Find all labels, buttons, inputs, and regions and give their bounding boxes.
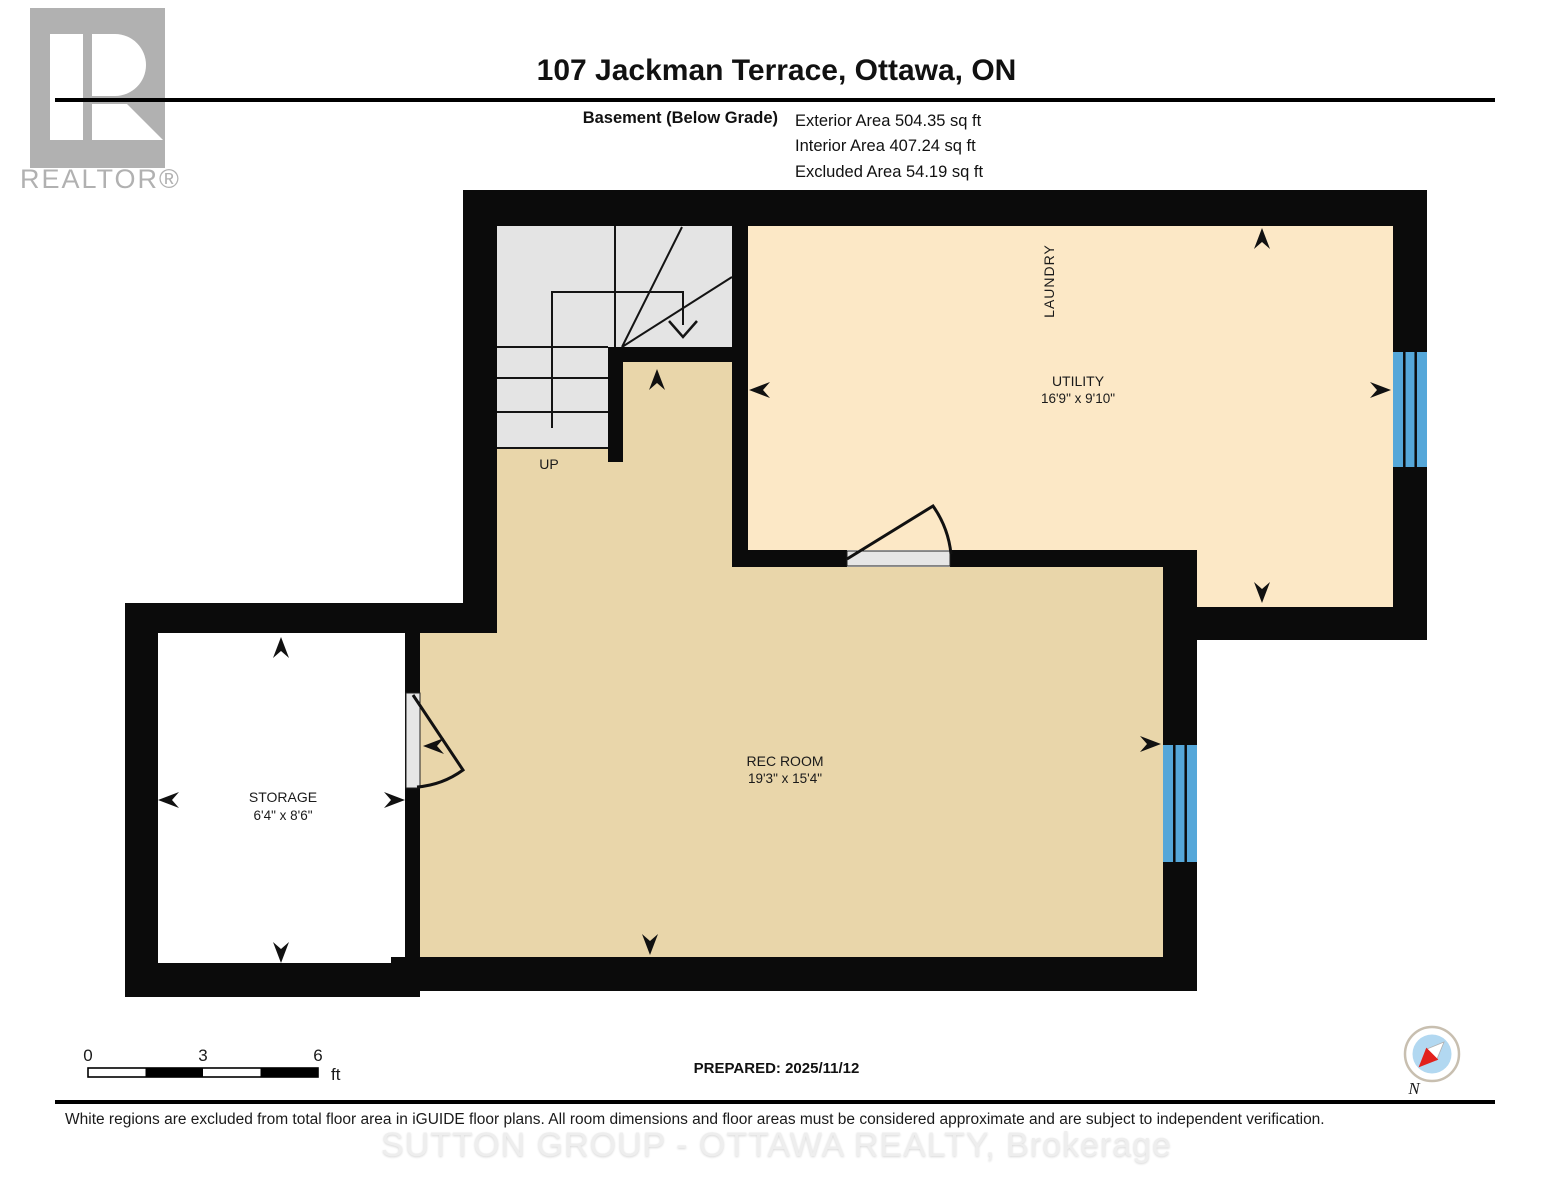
- window-utility: [1393, 352, 1427, 467]
- wall-top: [463, 190, 1427, 226]
- laundry-label: LAUNDRY: [1041, 244, 1057, 318]
- window-rec: [1163, 745, 1197, 862]
- wall-stair-utility: [732, 226, 748, 567]
- floor-plan-drawing: LAUNDRY UTILITY 16'9" x 9'10" REC ROOM 1…: [0, 0, 1553, 1200]
- wall-utility-bottom-right: [950, 550, 1163, 567]
- wall-stair-stub: [608, 362, 623, 462]
- floor-plan-page: REALTOR® 107 Jackman Terrace, Ottawa, ON…: [0, 0, 1553, 1200]
- rec-room-dims: 19'3" x 15'4": [748, 771, 822, 786]
- wall-storage-bottom: [125, 963, 420, 997]
- utility-room-floor: [747, 226, 1393, 607]
- wall-left-upper: [463, 226, 497, 633]
- wall-utility-bottom-left: [732, 550, 847, 567]
- storage-dims: 6'4" x 8'6": [253, 808, 312, 823]
- storage-label: STORAGE: [249, 789, 317, 805]
- compass-north-label: N: [1407, 1079, 1421, 1098]
- footer-divider: [55, 1100, 1495, 1104]
- wall-lobe-bottom: [1197, 607, 1427, 640]
- wall-storage-left: [125, 633, 158, 997]
- prepared-date: PREPARED: 2025/11/12: [0, 1060, 1553, 1077]
- stairs-up-label: UP: [539, 456, 558, 472]
- wall-storage-right: [405, 633, 420, 963]
- door-opening-storage: [406, 693, 420, 788]
- utility-dims: 16'9" x 9'10": [1041, 391, 1115, 406]
- wall-rec-bottom: [391, 957, 1163, 991]
- rec-room-label: REC ROOM: [747, 753, 824, 769]
- brokerage-watermark: SUTTON GROUP - OTTAWA REALTY, Brokerage: [0, 1126, 1553, 1165]
- utility-label: UTILITY: [1052, 373, 1105, 389]
- door-opening-utility: [847, 551, 950, 566]
- wall-winder-bottom: [608, 347, 732, 362]
- wall-storage-top: [125, 603, 463, 633]
